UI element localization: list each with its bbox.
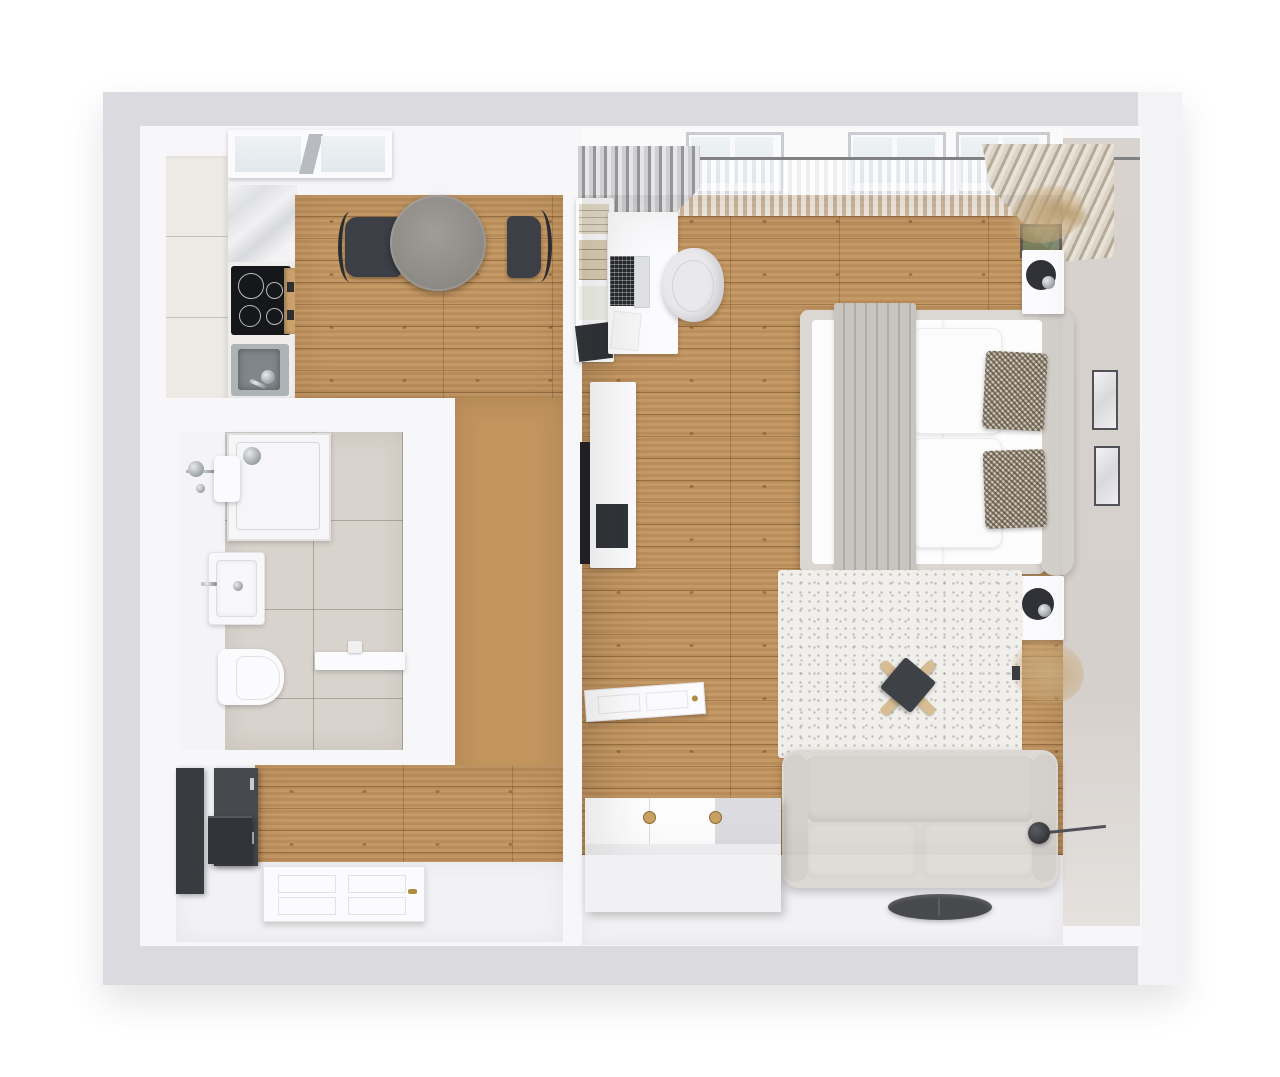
x-leg-stool — [872, 652, 944, 724]
dining-chair-left-armrest — [338, 212, 362, 282]
basin-faucet — [201, 582, 217, 586]
console-box — [596, 504, 628, 548]
ball-lamp-top-shade — [1042, 276, 1055, 289]
floor-lamp-head — [1028, 822, 1050, 844]
kitchen-sink — [231, 344, 289, 396]
interior-door-handle — [692, 695, 698, 701]
shower-drain — [243, 447, 261, 465]
dresser-top — [585, 798, 781, 844]
skylight-pane-right — [321, 136, 385, 172]
patterned-pillow-bottom — [983, 449, 1048, 529]
shower-mixer-knob — [196, 484, 205, 493]
book-white — [579, 286, 607, 320]
tall-cabinet-column — [166, 156, 228, 400]
book-tan — [579, 240, 607, 280]
shower-mixer-plate — [214, 456, 240, 502]
laptop-lid — [634, 256, 650, 308]
headboard — [1040, 308, 1074, 576]
wardrobe-tall-panel — [176, 768, 204, 894]
front-door-handle — [408, 889, 417, 894]
laptop-keyboard — [610, 256, 634, 306]
door-groove — [645, 690, 688, 711]
hall-wood-floor — [255, 765, 563, 872]
sofa-seat-cushion — [806, 822, 918, 878]
oven-handle — [287, 310, 294, 320]
sofa-back — [806, 756, 1034, 822]
plant-bracket — [1012, 666, 1020, 680]
sofa-armrest-right — [1032, 754, 1056, 882]
storage-box — [208, 816, 252, 864]
tv-console — [590, 382, 636, 568]
door-panel — [278, 875, 336, 893]
ball-lamp-bottom — [1022, 588, 1054, 620]
burner-icon — [266, 308, 283, 325]
picture-frame-upper — [1092, 370, 1118, 430]
shower-tray — [227, 433, 331, 541]
bath-counter-shelf — [315, 652, 405, 670]
tray-divider — [938, 898, 940, 916]
burner-icon — [238, 273, 264, 299]
sink-faucet — [261, 370, 275, 384]
tv-screen — [580, 442, 590, 564]
dresser — [585, 798, 781, 912]
burner-icon — [239, 305, 261, 327]
shower-head — [188, 461, 204, 477]
skylight-mullion — [299, 134, 323, 174]
cabinet-handle — [250, 778, 254, 790]
sofa-armrest-left — [784, 754, 808, 882]
front-door — [263, 866, 425, 922]
sofa — [782, 750, 1058, 888]
toilet-seat — [236, 656, 280, 700]
desk-chair-seat-line — [672, 260, 714, 312]
skylight-pane-left — [235, 136, 301, 172]
bath-shelf-faucet — [348, 641, 362, 653]
marble-counter — [228, 185, 297, 262]
dining-chair-right-armrest — [528, 210, 552, 282]
sofa-seat-cushion — [922, 822, 1034, 878]
desk-paper — [610, 311, 642, 352]
desk-chair — [662, 248, 724, 322]
toilet — [218, 649, 284, 705]
skylight-window — [228, 130, 392, 178]
patterned-pillow-top — [982, 350, 1048, 431]
ball-lamp-bottom-shade — [1038, 604, 1051, 617]
oven-handle — [287, 282, 294, 292]
cooktop — [231, 266, 291, 335]
book-stack — [579, 204, 609, 234]
door-panel — [348, 875, 406, 893]
floor-plan-scene — [0, 0, 1280, 1077]
round-floor-tray — [888, 894, 992, 920]
dresser-knob — [709, 811, 722, 824]
door-panel — [348, 897, 406, 915]
throw-blanket — [834, 303, 916, 581]
round-dining-table — [390, 195, 486, 291]
outer-wall-right — [1138, 92, 1182, 985]
washbasin — [208, 552, 265, 625]
door-panel — [278, 897, 336, 915]
picture-frame-lower — [1094, 446, 1120, 506]
burner-icon — [266, 282, 283, 299]
basin-drain — [233, 581, 243, 591]
door-groove — [597, 693, 640, 714]
dresser-knob — [643, 811, 656, 824]
